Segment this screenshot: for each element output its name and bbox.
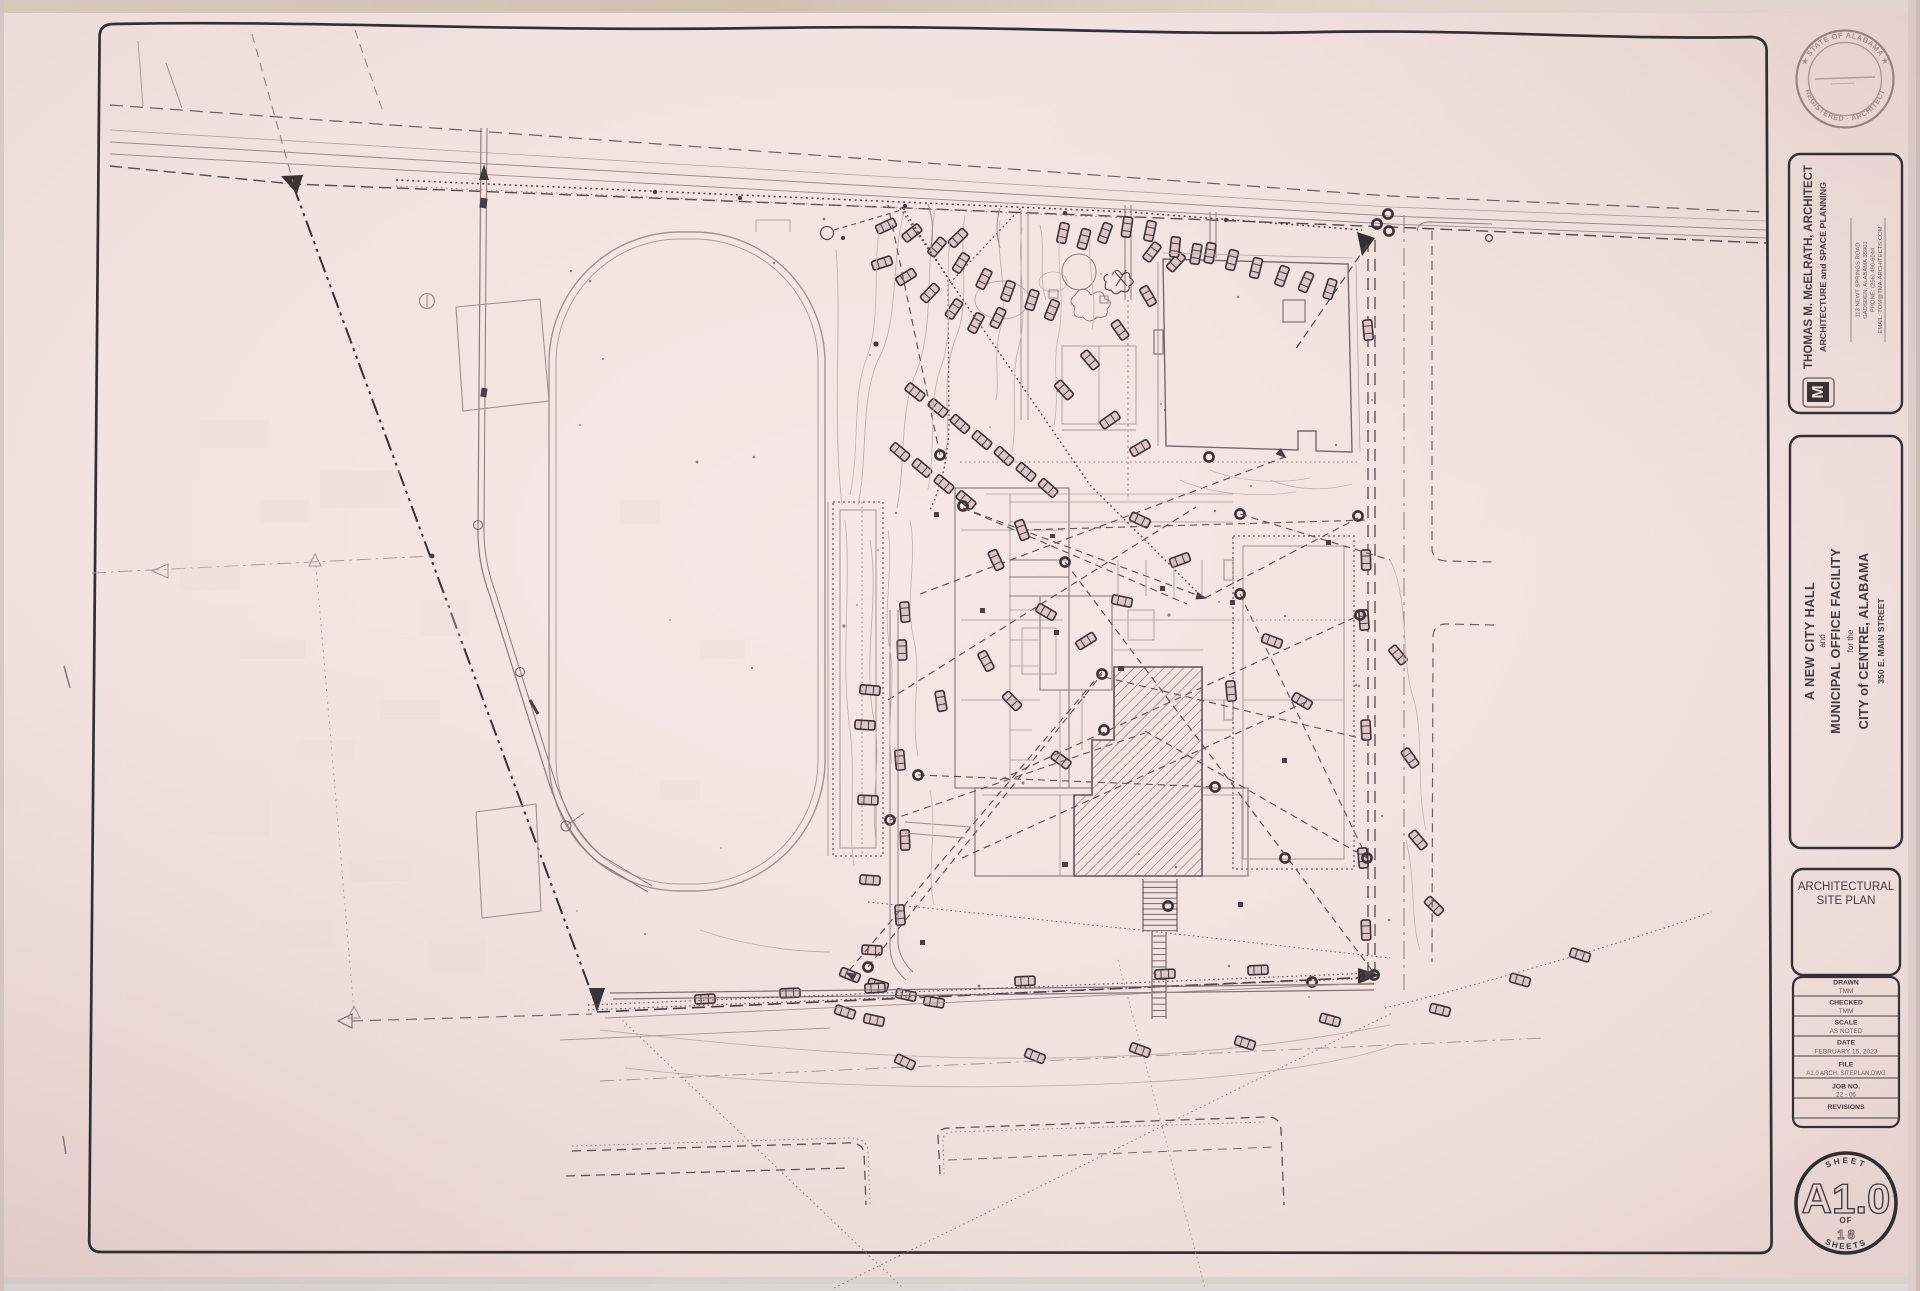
svg-text:OF: OF — [1839, 1216, 1852, 1225]
svg-text:A1.0 ARCH. SITEPLAN.DWG: A1.0 ARCH. SITEPLAN.DWG — [1806, 1071, 1886, 1077]
svg-text:TMM: TMM — [1839, 988, 1854, 995]
svg-text:MUNICIPAL OFFICE FACILITY: MUNICIPAL OFFICE FACILITY — [1828, 548, 1843, 734]
svg-text:REVISIONS: REVISIONS — [1827, 1104, 1864, 1111]
svg-text:M: M — [1810, 385, 1827, 398]
svg-text:CHECKED: CHECKED — [1829, 1000, 1863, 1007]
svg-text:for the: for the — [1846, 629, 1855, 652]
svg-text:SCALE: SCALE — [1834, 1020, 1858, 1027]
svg-text:A NEW CITY HALL: A NEW CITY HALL — [1802, 582, 1817, 700]
svg-text:PHONE: (256) 490-6044: PHONE: (256) 490-6044 — [1871, 247, 1877, 312]
svg-text:SITE PLAN: SITE PLAN — [1817, 895, 1876, 907]
svg-text:350 E. MAIN STREET: 350 E. MAIN STREET — [1876, 598, 1886, 684]
svg-text:22 - 06: 22 - 06 — [1836, 1092, 1856, 1099]
svg-text:DRAWN: DRAWN — [1833, 980, 1859, 987]
svg-text:THOMAS M. McELRATH, ARCHITECT: THOMAS M. McELRATH, ARCHITECT — [1801, 164, 1815, 369]
svg-text:FILE: FILE — [1839, 1062, 1854, 1069]
svg-text:1 8: 1 8 — [1837, 1228, 1854, 1242]
svg-text:GADSDEN, ALABAMA 35901: GADSDEN, ALABAMA 35901 — [1863, 241, 1869, 319]
svg-text:and: and — [1818, 634, 1827, 647]
svg-text:JOB NO.: JOB NO. — [1832, 1084, 1860, 1091]
svg-text:A1.0: A1.0 — [1802, 1175, 1891, 1222]
svg-text:EMAIL: TOM@TMA-ARCHITECTS.COM: EMAIL: TOM@TMA-ARCHITECTS.COM — [1878, 226, 1884, 333]
svg-text:DATE: DATE — [1837, 1040, 1855, 1047]
svg-text:ARCHITECTURAL: ARCHITECTURAL — [1798, 881, 1895, 893]
svg-text:CITY of CENTRE, ALABAMA: CITY of CENTRE, ALABAMA — [1856, 553, 1871, 730]
svg-text:AS NOTED: AS NOTED — [1830, 1028, 1863, 1035]
svg-text:ARCHITECTURE and SPACE PLANNIN: ARCHITECTURE and SPACE PLANNING — [1818, 182, 1828, 352]
svg-text:113 NEWT SPRINGS ROAD: 113 NEWT SPRINGS ROAD — [1856, 242, 1862, 317]
svg-text:FEBRUARY 15, 2023: FEBRUARY 15, 2023 — [1814, 1049, 1877, 1056]
svg-text:TMM: TMM — [1839, 1008, 1854, 1015]
